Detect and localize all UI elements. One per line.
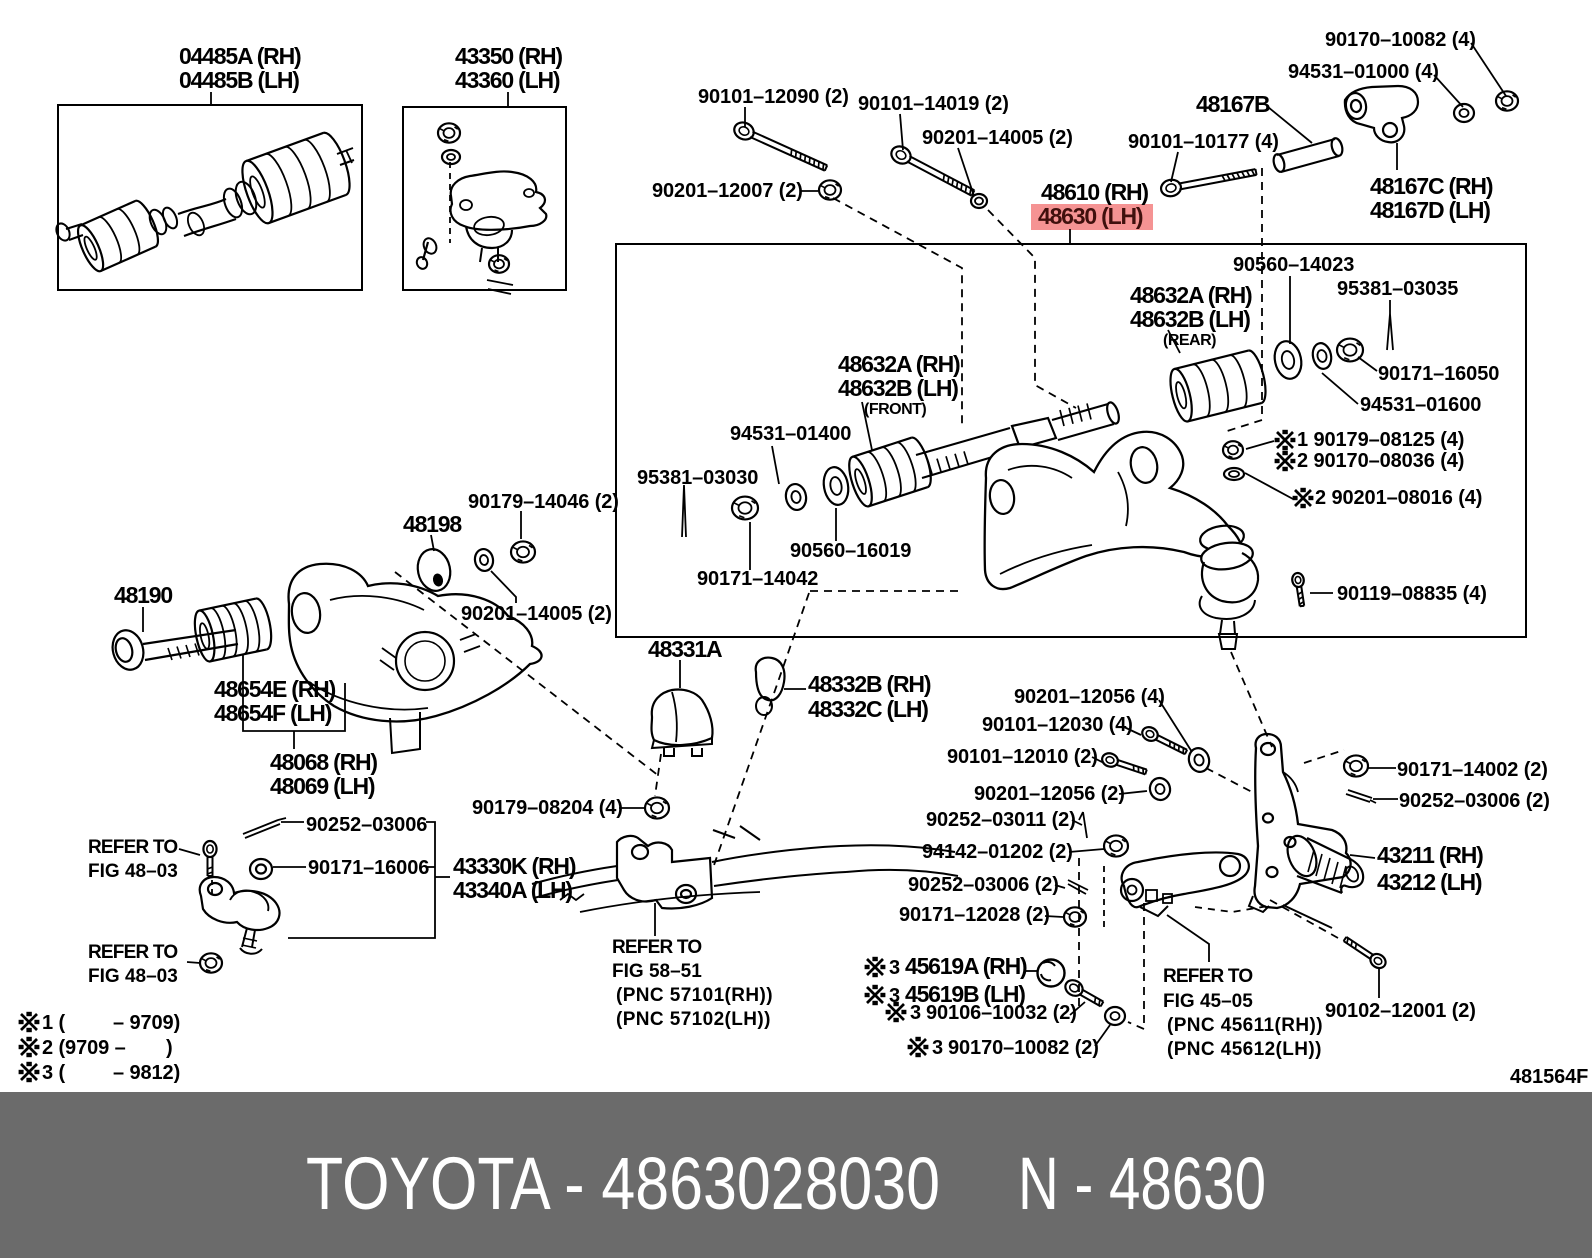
svg-text:2 90201–08016 (4): 2 90201–08016 (4) (1315, 487, 1482, 509)
svg-text:): ) (166, 1037, 173, 1059)
svg-text:94531–01400: 94531–01400 (730, 423, 851, 445)
svg-text:95381–03030: 95381–03030 (637, 467, 758, 489)
svg-text:90101–12090 (2): 90101–12090 (2) (698, 86, 849, 108)
svg-text:90170–10082 (4): 90170–10082 (4) (1325, 29, 1476, 51)
svg-text:43330K (RH): 43330K (RH) (453, 853, 576, 879)
svg-text:(PNC 57101(RH)): (PNC 57101(RH)) (616, 985, 773, 1006)
svg-text:(PNC 57102(LH)): (PNC 57102(LH)) (616, 1009, 771, 1030)
svg-text:90170–10082 (2): 90170–10082 (2) (948, 1037, 1099, 1059)
svg-text:1 90179–08125 (4): 1 90179–08125 (4) (1297, 429, 1464, 451)
svg-text:90560–16019: 90560–16019 (790, 540, 911, 562)
svg-text:04485B (LH): 04485B (LH) (179, 67, 299, 93)
svg-text:48167B: 48167B (1196, 91, 1270, 117)
svg-text:48332B (RH): 48332B (RH) (808, 671, 931, 697)
svg-text:90252–03011 (2): 90252–03011 (2) (926, 809, 1076, 831)
svg-text:48167C (RH): 48167C (RH) (1370, 173, 1493, 199)
svg-text:95381–03035: 95381–03035 (1337, 278, 1458, 300)
svg-text:43340A (LH): 43340A (LH) (453, 877, 572, 903)
svg-text:48331A: 48331A (648, 636, 722, 662)
svg-text:90201–12056 (2): 90201–12056 (2) (974, 783, 1125, 805)
svg-text:90252–03006: 90252–03006 (306, 814, 427, 836)
svg-text:90106–10032 (2): 90106–10032 (2) (926, 1002, 1077, 1024)
svg-text:REFER TO: REFER TO (88, 942, 177, 963)
svg-text:48630 (LH): 48630 (LH) (1038, 203, 1143, 229)
svg-text:90171–16006: 90171–16006 (308, 857, 429, 879)
svg-text:481564F: 481564F (1510, 1066, 1588, 1088)
svg-text:– 9709): – 9709) (113, 1012, 180, 1034)
svg-text:04485A (RH): 04485A (RH) (179, 43, 301, 69)
svg-text:3: 3 (889, 957, 900, 979)
svg-text:90171–14002 (2): 90171–14002 (2) (1397, 759, 1548, 781)
svg-text:TOYOTA - 4863028030: TOYOTA - 4863028030 (306, 1142, 940, 1225)
svg-text:(REAR): (REAR) (1163, 332, 1216, 349)
svg-text:(FRONT): (FRONT) (864, 401, 926, 418)
svg-text:FIG 45–05: FIG 45–05 (1163, 991, 1253, 1012)
svg-text:– 9812): – 9812) (113, 1062, 180, 1084)
svg-text:90101–12030 (4): 90101–12030 (4) (982, 714, 1133, 736)
svg-text:48654E (RH): 48654E (RH) (214, 676, 336, 702)
svg-text:(PNC 45612(LH)): (PNC 45612(LH)) (1167, 1039, 1322, 1060)
svg-text:90252–03006 (2): 90252–03006 (2) (908, 874, 1059, 896)
svg-text:94531–01000 (4): 94531–01000 (4) (1288, 61, 1439, 83)
svg-text:REFER TO: REFER TO (1163, 966, 1252, 987)
svg-text:48167D (LH): 48167D (LH) (1370, 197, 1490, 223)
svg-text:90201–12056 (4): 90201–12056 (4) (1014, 686, 1165, 708)
svg-text:90101–12010 (2): 90101–12010 (2) (947, 746, 1098, 768)
svg-text:2 (9709 –: 2 (9709 – (42, 1037, 126, 1059)
svg-text:48198: 48198 (403, 511, 462, 537)
svg-text:3: 3 (932, 1037, 943, 1059)
svg-text:1 (: 1 ( (42, 1012, 65, 1034)
svg-text:2 90170–08036 (4): 2 90170–08036 (4) (1297, 450, 1464, 472)
svg-text:90179–08204 (4): 90179–08204 (4) (472, 797, 623, 819)
svg-text:(PNC 45611(RH)): (PNC 45611(RH)) (1167, 1015, 1323, 1036)
svg-text:90171–12028 (2): 90171–12028 (2) (899, 904, 1050, 926)
svg-text:48632B (LH): 48632B (LH) (838, 375, 958, 401)
svg-text:90179–14046 (2): 90179–14046 (2) (468, 491, 619, 513)
svg-text:FIG 58–51: FIG 58–51 (612, 961, 702, 982)
svg-text:48069 (LH): 48069 (LH) (270, 773, 375, 799)
svg-text:43212 (LH): 43212 (LH) (1377, 869, 1482, 895)
svg-text:48632B (LH): 48632B (LH) (1130, 306, 1250, 332)
svg-text:90101–10177 (4): 90101–10177 (4) (1128, 131, 1279, 153)
svg-text:FIG 48–03: FIG 48–03 (88, 861, 178, 882)
svg-text:90201–14005 (2): 90201–14005 (2) (922, 127, 1073, 149)
svg-text:90119–08835 (4): 90119–08835 (4) (1337, 583, 1487, 605)
svg-text:REFER TO: REFER TO (88, 837, 177, 858)
svg-text:90560–14023: 90560–14023 (1233, 254, 1354, 276)
svg-text:45619A (RH): 45619A (RH) (905, 953, 1027, 979)
svg-text:43360 (LH): 43360 (LH) (455, 67, 560, 93)
svg-text:90102–12001 (2): 90102–12001 (2) (1325, 1000, 1476, 1022)
svg-text:43211 (RH): 43211 (RH) (1377, 842, 1483, 868)
svg-text:3: 3 (910, 1002, 921, 1024)
svg-text:90201–14005 (2): 90201–14005 (2) (461, 603, 612, 625)
svg-text:N - 48630: N - 48630 (1018, 1142, 1266, 1225)
svg-text:48632A (RH): 48632A (RH) (838, 351, 960, 377)
svg-text:48190: 48190 (114, 582, 172, 608)
svg-text:48332C (LH): 48332C (LH) (808, 696, 928, 722)
svg-text:48632A (RH): 48632A (RH) (1130, 282, 1252, 308)
svg-text:90201–12007 (2): 90201–12007 (2) (652, 180, 803, 202)
svg-text:43350 (RH): 43350 (RH) (455, 43, 562, 69)
svg-text:94142–01202 (2): 94142–01202 (2) (922, 841, 1073, 863)
svg-text:90171–16050: 90171–16050 (1378, 363, 1499, 385)
svg-text:48068 (RH): 48068 (RH) (270, 749, 377, 775)
svg-text:90171–14042: 90171–14042 (697, 568, 818, 590)
svg-text:REFER TO: REFER TO (612, 937, 701, 958)
svg-text:3 (: 3 ( (42, 1062, 65, 1084)
svg-text:94531–01600: 94531–01600 (1360, 394, 1481, 416)
svg-text:48654F (LH): 48654F (LH) (214, 700, 332, 726)
svg-text:90252–03006 (2): 90252–03006 (2) (1399, 790, 1550, 812)
svg-text:90101–14019 (2): 90101–14019 (2) (858, 93, 1009, 115)
svg-text:48610 (RH): 48610 (RH) (1041, 179, 1148, 205)
svg-text:FIG 48–03: FIG 48–03 (88, 966, 178, 987)
